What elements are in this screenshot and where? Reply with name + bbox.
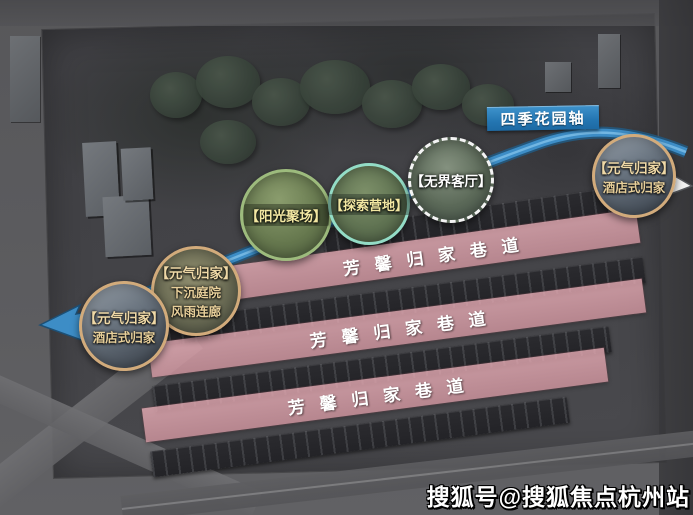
tree-cluster xyxy=(300,60,370,114)
callout-label-line3: 风雨连廊 xyxy=(171,301,221,320)
callout-label-line2: 酒店式归家 xyxy=(93,327,156,346)
callout-explore-camp: 【探索营地】 xyxy=(328,163,410,245)
callout-label: 【探索营地】 xyxy=(328,194,410,215)
callout-label-line2: 酒店式归家 xyxy=(603,177,666,196)
callout-label: 【无界客厅】 xyxy=(411,170,492,190)
tree-cluster xyxy=(200,120,256,164)
callout-label: 【阳光聚场】 xyxy=(244,204,329,226)
watermark-sohu: 搜狐号@搜狐焦点杭州站 xyxy=(427,478,690,512)
callout-hotel-return-right: 【元气归家】 酒店式归家 xyxy=(592,134,676,218)
edge-building xyxy=(598,34,620,88)
axis-banner-label: 四季花园轴 xyxy=(500,107,585,129)
tower-building xyxy=(102,195,151,257)
callout-hotel-return-left: 【元气归家】 酒店式归家 xyxy=(79,281,169,371)
edge-building xyxy=(10,36,40,122)
callout-label-line2: 下沉庭院 xyxy=(171,282,221,301)
top-edge-ground xyxy=(0,0,693,26)
callout-label-line1: 【元气归家】 xyxy=(84,307,165,327)
tree-cluster xyxy=(196,56,260,108)
callout-boundless-living-room: 【无界客厅】 xyxy=(408,137,494,223)
site-plan-canvas: 芳馨归家巷道 芳馨归家巷道 芳馨归家巷道 四季花园轴 【阳光聚场】 【探索营地】… xyxy=(0,0,693,515)
tower-building xyxy=(121,147,154,200)
callout-sunlight-plaza: 【阳光聚场】 xyxy=(240,169,332,261)
callout-label-line1: 【元气归家】 xyxy=(594,157,675,177)
axis-banner: 四季花园轴 xyxy=(487,105,599,131)
tree-cluster xyxy=(150,72,202,118)
edge-building xyxy=(545,62,571,92)
callout-label-line1: 【元气归家】 xyxy=(156,262,237,282)
